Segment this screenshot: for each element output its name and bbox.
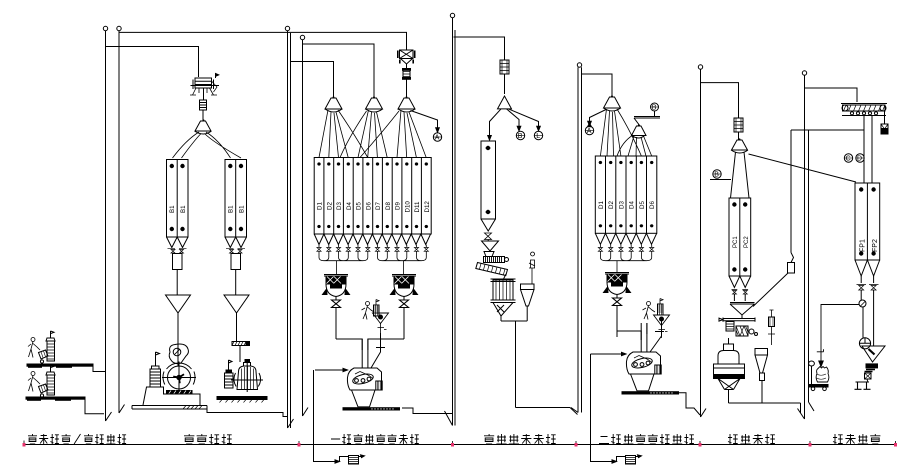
svg-text:D11: D11 — [414, 201, 421, 212]
svg-text:B1: B1 — [169, 205, 176, 213]
svg-text:D4: D4 — [346, 202, 353, 210]
svg-text:D7: D7 — [375, 202, 382, 210]
svg-text:B1: B1 — [180, 205, 187, 213]
svg-text:D1: D1 — [598, 201, 605, 209]
svg-text:B1: B1 — [239, 205, 246, 213]
svg-text:D10: D10 — [404, 201, 411, 213]
svg-text:B: B — [518, 133, 523, 140]
svg-text:D: D — [857, 156, 862, 163]
svg-text:D3: D3 — [336, 202, 343, 210]
svg-text:D3: D3 — [619, 201, 626, 209]
svg-text:D6: D6 — [649, 201, 656, 209]
svg-text:A: A — [435, 135, 440, 142]
svg-text:D2: D2 — [608, 201, 615, 209]
svg-text:D2: D2 — [326, 202, 333, 210]
svg-text:D5: D5 — [356, 202, 363, 210]
svg-text:B1: B1 — [228, 205, 235, 213]
svg-text:D12: D12 — [424, 201, 431, 213]
svg-text:PC2: PC2 — [744, 236, 750, 248]
svg-text:D4: D4 — [629, 201, 636, 209]
svg-text:D5: D5 — [639, 201, 646, 209]
svg-text:FP1: FP1 — [860, 239, 867, 252]
svg-text:D8: D8 — [385, 202, 392, 210]
svg-text:PC1: PC1 — [733, 236, 739, 248]
svg-text:D1: D1 — [317, 202, 324, 210]
svg-text:B: B — [714, 172, 719, 179]
svg-text:FP2: FP2 — [872, 239, 879, 252]
svg-text:D9: D9 — [395, 202, 402, 210]
svg-text:D6: D6 — [365, 202, 372, 210]
svg-text:B: B — [652, 105, 657, 112]
svg-text:A: A — [587, 128, 592, 135]
svg-text:L: L — [536, 133, 540, 140]
svg-text:C: C — [846, 156, 851, 163]
